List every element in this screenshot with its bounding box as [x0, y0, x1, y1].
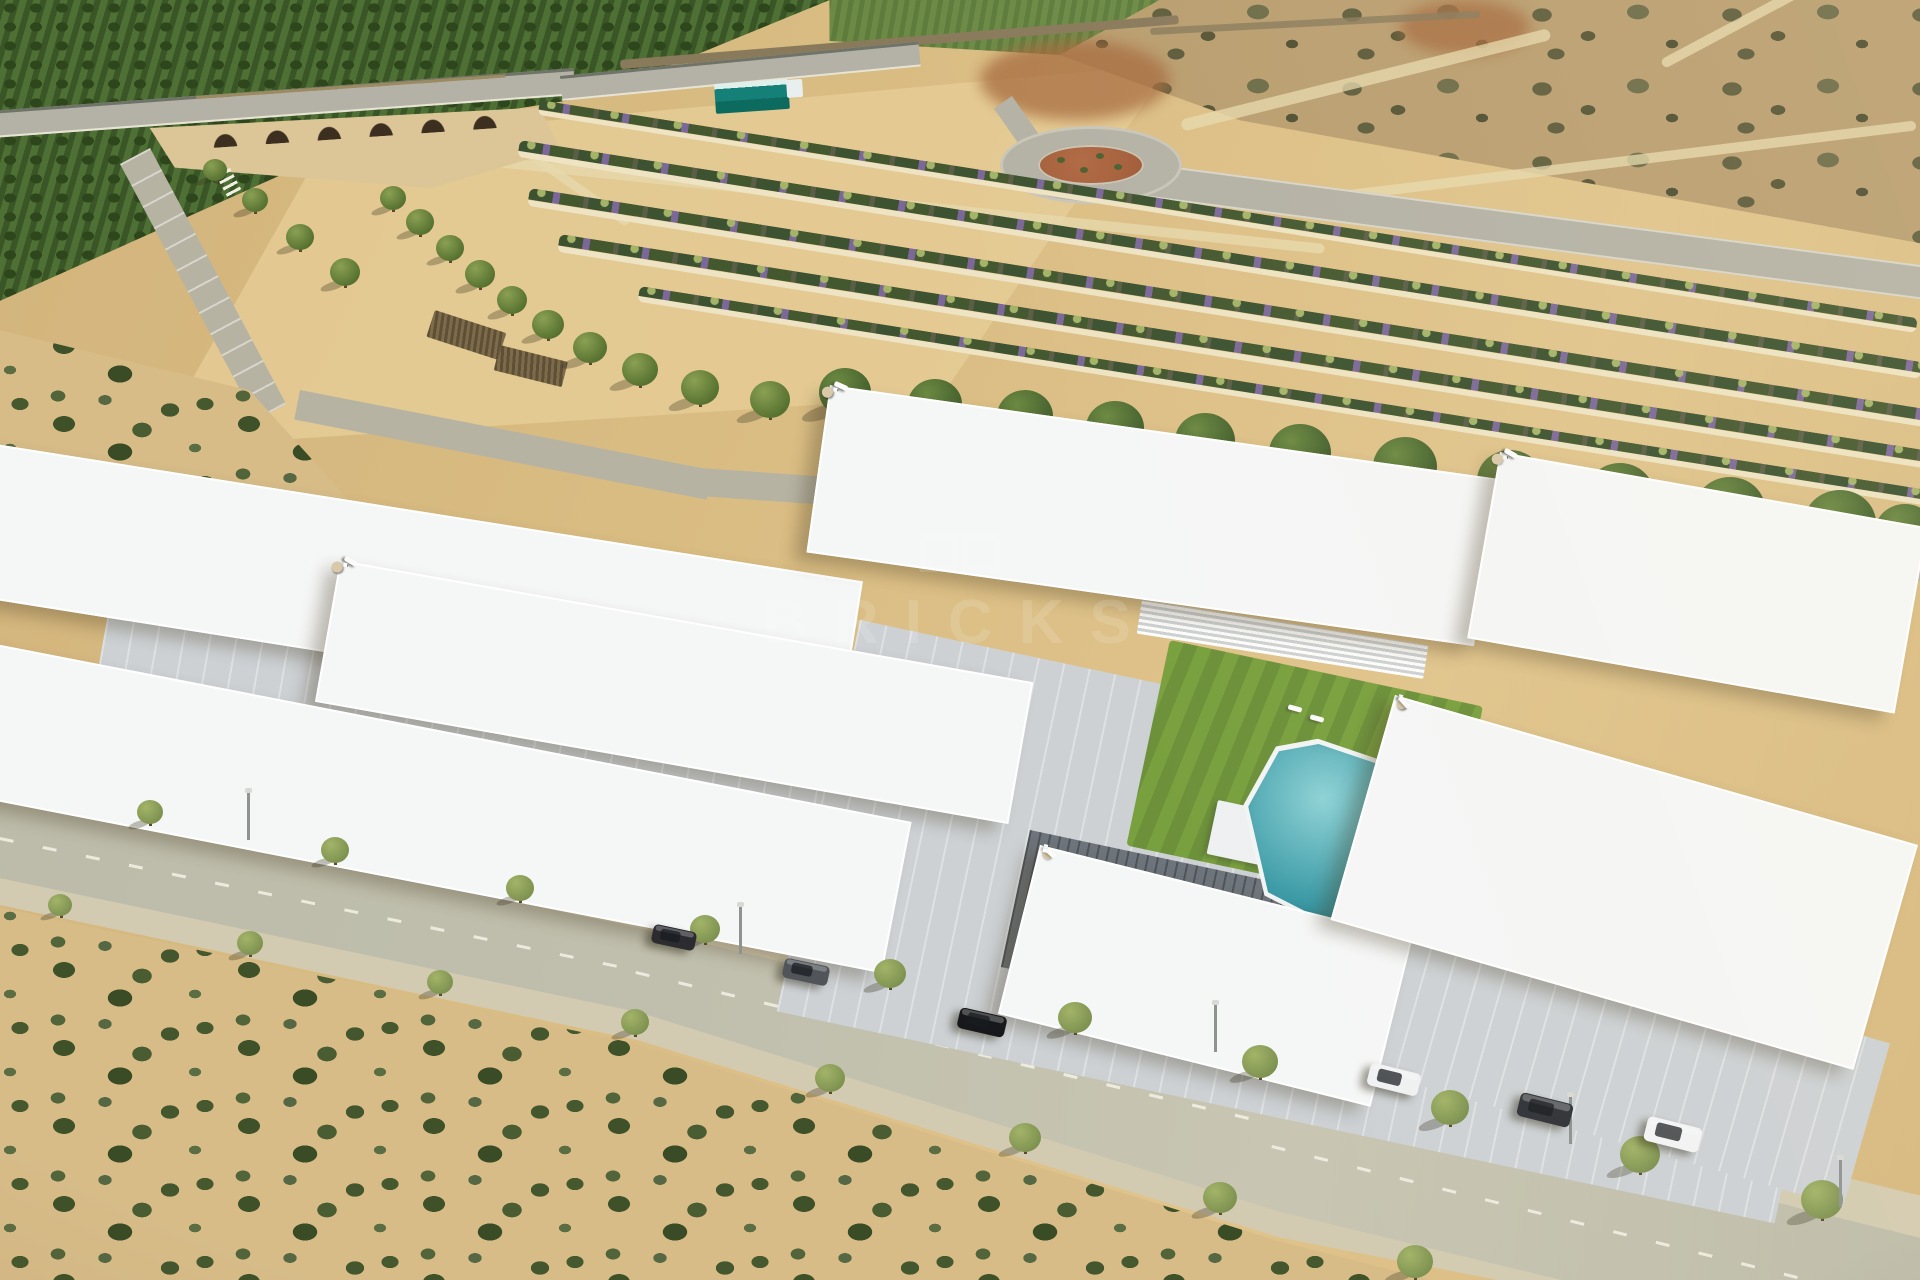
street-tree	[815, 1064, 845, 1092]
roof-parasol	[821, 386, 833, 398]
tree-canopy	[48, 894, 72, 916]
tree-shadow	[1191, 1203, 1221, 1220]
tree-canopy	[750, 381, 790, 418]
roof-terrace	[1503, 455, 1508, 460]
tree-shadow	[667, 394, 701, 413]
roof-terrace	[343, 563, 348, 568]
tree-trunk	[547, 332, 550, 341]
tree-shadow	[486, 306, 513, 321]
roof-terrace	[833, 388, 838, 393]
tree-canopy	[330, 258, 360, 286]
street-tree	[1009, 1123, 1041, 1152]
lamp-head	[245, 788, 252, 793]
street-tree	[427, 970, 453, 994]
tree-trunk	[249, 949, 252, 957]
tree-canopy	[203, 159, 227, 181]
park-tree	[406, 209, 434, 235]
tree-canopy	[681, 370, 719, 405]
park-tree	[497, 286, 527, 314]
watermark-logo-icon	[920, 534, 958, 572]
aerial-render-scene: BRICKS	[0, 0, 1920, 1280]
tree-shadow	[319, 278, 346, 293]
tree-trunk	[392, 204, 395, 212]
tree-canopy	[532, 310, 564, 339]
street-lamp	[1212, 1000, 1220, 1052]
park-tree	[622, 353, 658, 386]
tree-trunk	[439, 988, 442, 996]
tree-canopy	[1397, 1245, 1433, 1278]
tree-shadow	[370, 203, 393, 216]
street-tree	[237, 931, 263, 955]
park-tree	[532, 310, 564, 339]
street-lamp	[737, 902, 745, 954]
tree-canopy	[427, 970, 453, 994]
tree-shadow	[417, 987, 440, 1000]
park-tree	[286, 224, 314, 250]
street-lamp	[1837, 1155, 1845, 1207]
tree-canopy	[497, 286, 527, 314]
tree-shadow	[396, 227, 421, 241]
park-tree	[380, 186, 406, 210]
street-tree	[1397, 1245, 1433, 1278]
park-tree	[242, 188, 268, 212]
tree-trunk	[639, 378, 642, 388]
tree-trunk	[60, 910, 63, 918]
tree-shadow	[194, 175, 215, 187]
watermark-text: BRICKS	[600, 587, 1320, 658]
tree-shadow	[997, 1143, 1025, 1159]
tree-trunk	[634, 1029, 637, 1037]
park-tree	[750, 381, 790, 418]
street-tree	[1203, 1182, 1237, 1213]
tree-canopy	[621, 1009, 649, 1035]
tree-trunk	[1414, 1270, 1417, 1280]
tree-shadow	[426, 253, 451, 267]
tree-canopy	[1203, 1182, 1237, 1213]
tree-shadow	[804, 1084, 831, 1099]
watermark: BRICKS	[600, 532, 1320, 712]
tree-canopy	[436, 235, 464, 261]
tree-shadow	[454, 280, 481, 295]
watermark-logo-icon	[962, 534, 1000, 572]
park-tree	[681, 370, 719, 405]
tree-canopy	[573, 332, 607, 363]
tree-trunk	[829, 1086, 832, 1094]
tree-canopy	[622, 353, 658, 386]
tree-shadow	[735, 406, 770, 426]
tree-canopy	[815, 1064, 845, 1092]
tree-canopy	[465, 260, 495, 288]
tree-canopy	[237, 931, 263, 955]
tree-trunk	[419, 229, 422, 237]
tree-trunk	[511, 308, 514, 316]
park-tree	[436, 235, 464, 261]
tree-canopy	[286, 224, 314, 250]
tree-shadow	[520, 330, 548, 346]
park-tree	[203, 159, 227, 181]
building-unit	[1396, 697, 1398, 698]
tree-canopy	[242, 188, 268, 212]
tree-shadow	[561, 353, 591, 370]
lamp-pole	[739, 906, 742, 954]
tree-trunk	[1024, 1145, 1027, 1154]
lamp-pole	[247, 792, 250, 840]
lamp-head	[1837, 1155, 1844, 1160]
tree-shadow	[1384, 1267, 1416, 1280]
tree-trunk	[1219, 1206, 1222, 1215]
tree-trunk	[299, 244, 302, 252]
tree-shadow	[232, 205, 255, 218]
tree-trunk	[699, 397, 702, 407]
tree-shadow	[39, 910, 60, 922]
tree-trunk	[769, 409, 772, 420]
street-lamp	[245, 788, 253, 840]
tree-trunk	[479, 282, 482, 290]
park-tree	[330, 258, 360, 286]
street-tree	[48, 894, 72, 916]
street-tree	[621, 1009, 649, 1035]
tree-trunk	[215, 175, 218, 183]
lamp-head	[1212, 1000, 1219, 1005]
tree-trunk	[449, 255, 452, 263]
tree-shadow	[276, 242, 301, 256]
roof-parasol	[1491, 453, 1504, 466]
tree-shadow	[227, 948, 250, 961]
lamp-head	[1567, 1092, 1574, 1097]
lamp-head	[737, 902, 744, 907]
tree-shadow	[611, 1027, 636, 1041]
park-tree	[465, 260, 495, 288]
tree-canopy	[1009, 1123, 1041, 1152]
tree-trunk	[254, 206, 257, 214]
tree-canopy	[406, 209, 434, 235]
tree-trunk	[589, 356, 592, 365]
lamp-pole	[1839, 1159, 1842, 1207]
lamp-pole	[1214, 1004, 1217, 1052]
tree-canopy	[380, 186, 406, 210]
tree-shadow	[1786, 1206, 1823, 1227]
tree-shadow	[609, 375, 641, 393]
tree-trunk	[344, 280, 347, 288]
park-tree	[573, 332, 607, 363]
tree-trunk	[1821, 1209, 1824, 1221]
